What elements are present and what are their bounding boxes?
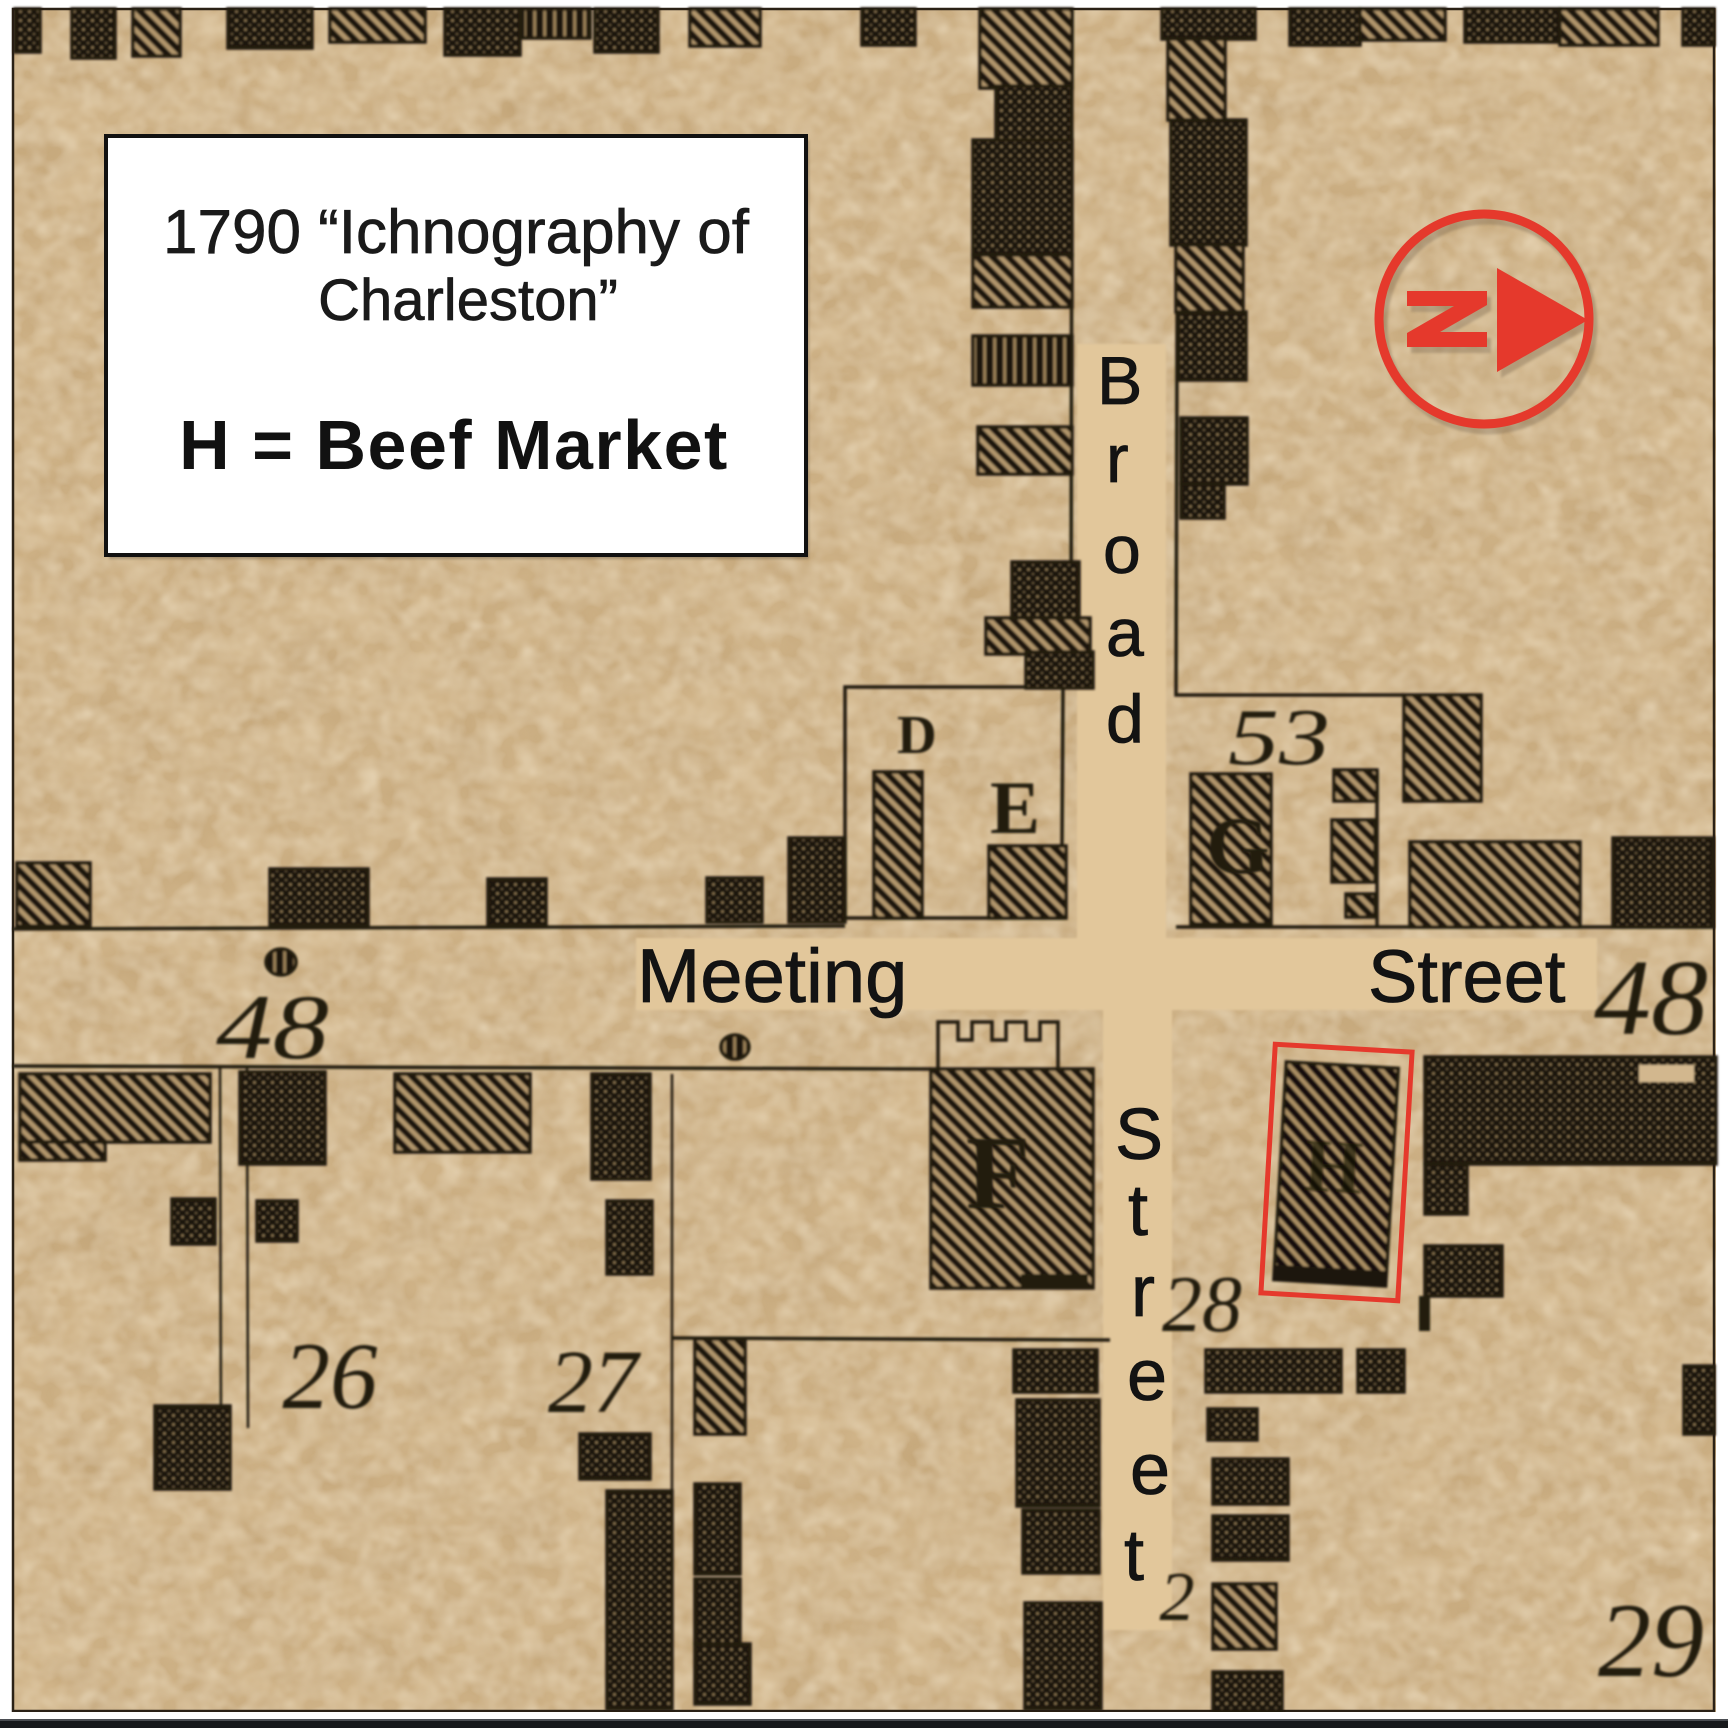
svg-text:Street: Street: [1368, 935, 1566, 1018]
svg-text:t: t: [1124, 1516, 1144, 1596]
svg-text:d: d: [1106, 681, 1144, 757]
svg-text:S: S: [1115, 1095, 1163, 1175]
svg-text:2: 2: [1160, 1559, 1195, 1636]
svg-text:E: E: [990, 767, 1040, 850]
svg-text:F: F: [966, 1114, 1030, 1231]
svg-text:r: r: [1106, 421, 1129, 497]
svg-text:r: r: [1131, 1252, 1155, 1332]
svg-text:26: 26: [283, 1323, 379, 1429]
svg-text:53: 53: [1228, 694, 1330, 782]
svg-text:t: t: [1128, 1171, 1148, 1251]
svg-text:Charleston”: Charleston”: [318, 268, 618, 333]
svg-text:48: 48: [216, 976, 329, 1078]
svg-text:H: H: [1301, 1123, 1365, 1210]
svg-text:1790 “Ichnography of: 1790 “Ichnography of: [163, 198, 750, 267]
svg-text:e: e: [1130, 1430, 1170, 1510]
svg-text:B: B: [1097, 343, 1142, 419]
svg-text:48: 48: [1594, 939, 1708, 1058]
svg-text:D: D: [897, 704, 937, 765]
svg-text:Meeting: Meeting: [637, 934, 907, 1019]
svg-text:e: e: [1127, 1336, 1167, 1416]
svg-text:27: 27: [548, 1333, 642, 1432]
svg-text:a: a: [1106, 595, 1144, 671]
svg-text:28: 28: [1162, 1261, 1242, 1349]
svg-text:H = Beef Market: H = Beef Market: [179, 406, 729, 484]
svg-text:G: G: [1206, 800, 1270, 891]
svg-text:29: 29: [1598, 1582, 1704, 1699]
svg-text:o: o: [1103, 512, 1141, 588]
